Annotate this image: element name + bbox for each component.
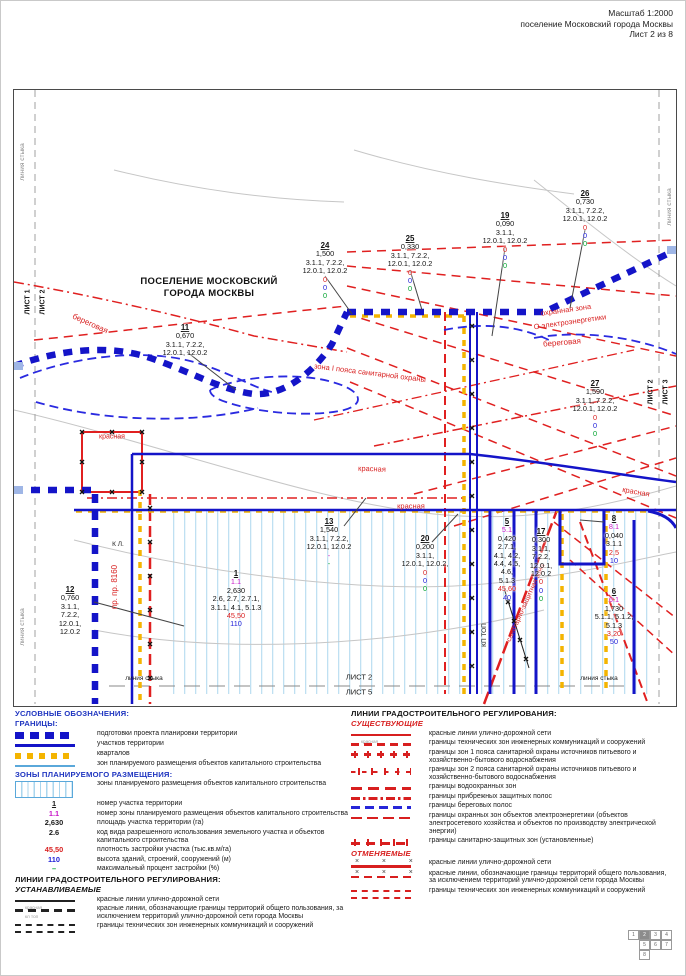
hatchbox-swatch (15, 781, 73, 798)
sheet-grid-cell-2: 2 (639, 930, 650, 940)
legend-item-label: границы прибрежных защитных полос (425, 793, 552, 801)
legend-item-label: границы охранных зон объектов электроэне… (425, 812, 675, 836)
parcel-value: 40 (494, 594, 520, 602)
legend-item: границы зон 2 пояса санитарной охраны ис… (351, 766, 675, 782)
map-label: ЛИСТ 2 (40, 290, 47, 315)
blue-chain-swatch (15, 732, 75, 739)
legend-item: зон планируемого размещения объектов кап… (15, 760, 351, 768)
legend-swatch-cell (351, 766, 425, 776)
parcel-label-19: 190,0903.1.1,12.0.1, 12.0.2000 (483, 212, 528, 271)
parcel-value: 0 (303, 292, 348, 300)
parcel-label-1: 11.12,6302.6, 2.7, 2.7.1,3.1.1, 4.1, 5.1… (211, 570, 262, 629)
legend-swatch-cell (351, 749, 425, 759)
red-solid-swatch (351, 734, 411, 737)
legend-item: границы водоохранных зон (351, 783, 675, 791)
legend-item: подготовки проекта планировки территории (15, 730, 351, 739)
red-dbl-swatch (351, 890, 411, 899)
parcel-value: 110 (211, 620, 262, 628)
legend-swatch-cell (15, 740, 93, 747)
legend-swatch-cell (351, 887, 425, 899)
legend: УСЛОВНЫЕ ОБОЗНАЧЕНИЯ:ГРАНИЦЫ:подготовки … (15, 708, 675, 935)
parcel-label-25: 250,3303.1.1, 7.2.2,12.0.1, 12.0.2000 (388, 235, 433, 294)
map-label: ЛИСТ 2 (346, 673, 372, 681)
legend-item: краснаякрасные линии улично-дорожной сет… (351, 730, 675, 738)
parcel-label-5: 55.10,4202.7.1,4.1, 4.2,4.4, 4.5,4.6,5.1… (494, 518, 520, 602)
legend-item: границы технических зон инженерных комму… (351, 887, 675, 899)
legend-item: 2.6код вида разрешенного использования з… (15, 829, 351, 845)
map-label: зона I пояса санитарной охраны (314, 362, 427, 383)
legend-item: –максимальный процент застройки (%) (15, 865, 351, 873)
legend-swatch-cell: красная (351, 730, 425, 737)
parcel-value: 0 (563, 240, 608, 248)
legend-item-label: зон планируемого размещения объектов кап… (93, 760, 321, 768)
map-title-line2: ГОРОДА МОСКВЫ (104, 288, 314, 300)
legend-heading: ЛИНИИ ГРАДОСТРОИТЕЛЬНОГО РЕГУЛИРОВАНИЯ: (15, 875, 351, 884)
parcel-codes: 12.0.1, 12.0.2 (163, 349, 208, 357)
legend-swatch-cell (351, 783, 425, 790)
legend-swatch-cell (351, 739, 425, 746)
map-label: К Л. (112, 542, 124, 549)
legend-item: участков территории (15, 740, 351, 748)
legend-symbol: – (15, 865, 93, 873)
legend-swatch-cell (351, 812, 425, 820)
map-canvas: ПОСЕЛЕНИЕ МОСКОВСКИЙ ГОРОДА МОСКВЫ линия… (13, 89, 677, 707)
legend-symbol: 1 (15, 800, 93, 808)
parcel-value: 0 (530, 595, 552, 603)
legend-item: границы береговых полос (351, 802, 675, 810)
legend-item-label: границы технических зон инженерных комму… (425, 887, 645, 895)
parcel-label-26: 260,7303.1.1, 7.2.2,12.0.1, 12.0.2000 (563, 190, 608, 249)
legend-swatch-cell (351, 837, 425, 847)
legend-swatch-cell (351, 793, 425, 800)
legend-item-label: высота зданий, строений, сооружений (м) (93, 856, 231, 864)
map-label: красная (622, 486, 651, 498)
red-dashdot-swatch (351, 797, 411, 800)
legend-symbol: 45,50 (15, 846, 93, 854)
legend-item-label: номер зоны планируемого размещения объек… (93, 810, 348, 818)
legend-item: красные линии улично-дорожной сети (351, 859, 675, 868)
map-label: линия стыка (20, 608, 27, 645)
sheet-grid-cell-7: 7 (661, 940, 672, 950)
red-szdash-swatch (351, 838, 411, 847)
legend-swatch-cell (351, 870, 425, 879)
parcel-value: 0 (388, 285, 433, 293)
yellow-swatch (15, 753, 75, 759)
map-label: красная (99, 434, 125, 441)
legend-item-label: границы технических зон инженерных комму… (93, 922, 313, 930)
legend-item: кварталов (15, 750, 351, 759)
legend-heading: УСЛОВНЫЕ ОБОЗНАЧЕНИЯ: (15, 709, 351, 718)
blue-dash-swatch (351, 806, 411, 809)
legend-item-label: плотность застройки участка (тыс.кв.м/га… (93, 846, 231, 854)
blue-solid-swatch (15, 744, 75, 747)
map-label: КП ТОП (482, 623, 489, 647)
map-label: береговая (543, 337, 582, 348)
legend-item-label: границы санитарно-защитных зон (установл… (425, 837, 593, 845)
legend-swatch-cell (15, 760, 93, 767)
parcel-value: 0 (402, 585, 449, 593)
map-label: красная (358, 465, 386, 473)
legend-item-label: границы зон 2 пояса санитарной охраны ис… (425, 766, 675, 782)
legend-item-label: красные линии, обозначающие границы терр… (425, 870, 675, 886)
legend-item-label: границы технических зон инженерных комму… (425, 739, 645, 747)
red-dash-swatch (351, 743, 411, 746)
parcel-value: 0 (483, 262, 528, 270)
legend-item: кл топкрасные линии, обозначающие границ… (15, 905, 351, 921)
legend-item-label: границы зон 1 пояса санитарной охраны ис… (425, 749, 675, 765)
parcel-label-12: 120,7603.1.1,7.2.2,12.0.1,12.0.2 (59, 586, 81, 636)
parcel-value: - (307, 560, 352, 568)
legend-swatch-cell (15, 750, 93, 759)
legend-item-label: кварталов (93, 750, 130, 758)
legend-item-label: максимальный процент застройки (%) (93, 865, 219, 873)
legend-item: границы технических зон инженерных комму… (351, 739, 675, 747)
black-dbl-swatch (15, 924, 75, 933)
legend-item: границы санитарно-защитных зон (установл… (351, 837, 675, 847)
legend-item: границы охранных зон объектов электроэне… (351, 812, 675, 836)
map-label-layer: ПОСЕЛЕНИЕ МОСКОВСКИЙ ГОРОДА МОСКВЫ линия… (14, 90, 676, 706)
legend-swatch-cell (15, 730, 93, 739)
legend-heading: СУЩЕСТВУЮЩИЕ (351, 719, 675, 728)
parcel-label-24: 241,5003.1.1, 7.2.2,12.0.1, 12.0.2000 (303, 242, 348, 301)
legend-item-label: зоны планируемого размещения объектов ка… (93, 780, 326, 788)
sheet-header: Масштаб 1:2000 поселение Московский горо… (520, 8, 673, 40)
header-scale: Масштаб 1:2000 (520, 8, 673, 19)
legend-symbol: 2,630 (15, 819, 93, 827)
sheet-grid-cell-1: 1 (628, 930, 639, 940)
header-settlement: поселение Московский города Москвы (520, 19, 673, 30)
parcel-value: 50 (595, 638, 634, 646)
map-label: линия стыка (667, 188, 674, 225)
legend-swatch-cell (351, 802, 425, 809)
legend-symbol: 110 (15, 856, 93, 864)
legend-symbol: 1.1 (15, 810, 93, 818)
legend-item: 1.1номер зоны планируемого размещения об… (15, 810, 351, 818)
parcel-value: 0 (573, 430, 618, 438)
legend-heading: ЗОНЫ ПЛАНИРУЕМОГО РАЗМЕЩЕНИЯ: (15, 770, 351, 779)
legend-item: границы зон 1 пояса санитарной охраны ис… (351, 749, 675, 765)
legend-item-label: площадь участка территории (га) (93, 819, 204, 827)
map-label: пр. пр. 8160 (111, 565, 119, 609)
legend-item-label: код вида разрешенного использования земе… (93, 829, 351, 845)
legend-symbol: 2.6 (15, 829, 93, 837)
cyan-swatch (15, 765, 75, 767)
black-solid-swatch (15, 900, 75, 903)
parcel-label-8: 88.10,0403.1.12,510 (605, 515, 623, 565)
legend-item-label: красные линии улично-дорожной сети (425, 859, 551, 867)
legend-right: ЛИНИИ ГРАДОСТРОИТЕЛЬНОГО РЕГУЛИРОВАНИЯ:С… (351, 708, 675, 901)
legend-left: УСЛОВНЫЕ ОБОЗНАЧЕНИЯ:ГРАНИЦЫ:подготовки … (15, 708, 351, 935)
map-settlement-title: ПОСЕЛЕНИЕ МОСКОВСКИЙ ГОРОДА МОСКВЫ (104, 276, 314, 299)
legend-item: 45,50плотность застройки участка (тыс.кв… (15, 846, 351, 854)
sheet-grid-cell-8: 8 (639, 950, 650, 960)
legend-item-label: подготовки проекта планировки территории (93, 730, 237, 738)
map-label: береговая (71, 313, 109, 336)
legend-swatch-cell: кл топ (15, 905, 93, 912)
map-label: ЛИСТ 1 (25, 290, 32, 315)
map-label: ЛИСТ 5 (346, 688, 372, 696)
parcel-label-11: 110,6703.1.1, 7.2.2,12.0.1, 12.0.2 (163, 324, 208, 358)
legend-item-label: границы береговых полос (425, 802, 512, 810)
red-dash-x-swatch (351, 876, 411, 879)
legend-swatch-sublabel: кл топ (25, 914, 38, 919)
legend-item: краснаякрасные линии улично-дорожной сет… (15, 896, 351, 904)
legend-heading: ОТМЕНЯЕМЫЕ (351, 849, 675, 858)
legend-swatch-cell (15, 780, 93, 798)
map-label: линия стыка (125, 676, 162, 683)
legend-item-label: красные линии улично-дорожной сети (425, 730, 551, 738)
legend-item-label: красные линии, обозначающие границы терр… (93, 905, 351, 921)
sheet-index-grid: 12345678 (628, 930, 680, 968)
map-title-line1: ПОСЕЛЕНИЕ МОСКОВСКИЙ (104, 276, 314, 288)
red-wdash-swatch (351, 787, 411, 790)
legend-item: границы технических зон инженерных комму… (15, 922, 351, 933)
parcel-label-20: 200,2003.1.1,12.0.1, 12.0.2,000 (402, 535, 449, 594)
legend-item: границы прибрежных защитных полос (351, 793, 675, 801)
legend-heading: ГРАНИЦЫ: (15, 719, 351, 728)
legend-heading: УСТАНАВЛИВАЕМЫЕ (15, 885, 351, 894)
sheet-grid-cell-4: 4 (661, 930, 672, 940)
parcel-label-6: 66.11,7305.1.1, 5.1.2,5.1.33,2050 (595, 588, 634, 647)
black-dash-swatch (15, 909, 75, 912)
parcel-label-17: 170,3003.1.1,7.2.2,12.0.1,12.0.2000 (530, 528, 552, 604)
legend-item: 1номер участка территории (15, 800, 351, 808)
map-label: ЛИСТ 2 (648, 380, 655, 405)
parcel-label-13: 131,5403.1.1, 7.2.2,12.0.1, 12.0.2-- (307, 518, 352, 568)
legend-swatch-cell (15, 922, 93, 933)
legend-item-label: красные линии улично-дорожной сети (93, 896, 219, 904)
parcel-value: 10 (605, 557, 623, 565)
sheet-grid-cell-5: 5 (639, 940, 650, 950)
red-zone2-swatch (351, 767, 411, 776)
legend-item-label: номер участка территории (93, 800, 182, 808)
legend-swatch-cell (351, 859, 425, 868)
map-label: красная (397, 502, 425, 510)
legend-heading: ЛИНИИ ГРАДОСТРОИТЕЛЬНОГО РЕГУЛИРОВАНИЯ: (351, 709, 675, 718)
plan-sheet-page: Масштаб 1:2000 поселение Московский горо… (0, 0, 686, 976)
sheet-grid-cell-6: 6 (650, 940, 661, 950)
legend-item-label: границы водоохранных зон (425, 783, 516, 791)
red-eldash-swatch (351, 817, 411, 820)
legend-item-label: участков территории (93, 740, 164, 748)
map-label: линия стыка (580, 676, 617, 683)
legend-item: 2,630площадь участка территории (га) (15, 819, 351, 827)
legend-swatch-cell: красная (15, 896, 93, 903)
parcel-label-27: 271,5903.1.1, 7.2.2,12.0.1, 12.0.2000 (573, 380, 618, 439)
map-label: линия стыка (20, 143, 27, 180)
legend-item: 110высота зданий, строений, сооружений (… (15, 856, 351, 864)
sheet-grid-cell-3: 3 (650, 930, 661, 940)
parcel-codes: 12.0.2 (59, 628, 81, 636)
legend-item: красные линии, обозначающие границы терр… (351, 870, 675, 886)
legend-item: зоны планируемого размещения объектов ка… (15, 780, 351, 798)
map-label: ЛИСТ 3 (663, 380, 670, 405)
red-zone-swatch (351, 750, 411, 759)
header-sheet-number: Лист 2 из 8 (520, 29, 673, 40)
